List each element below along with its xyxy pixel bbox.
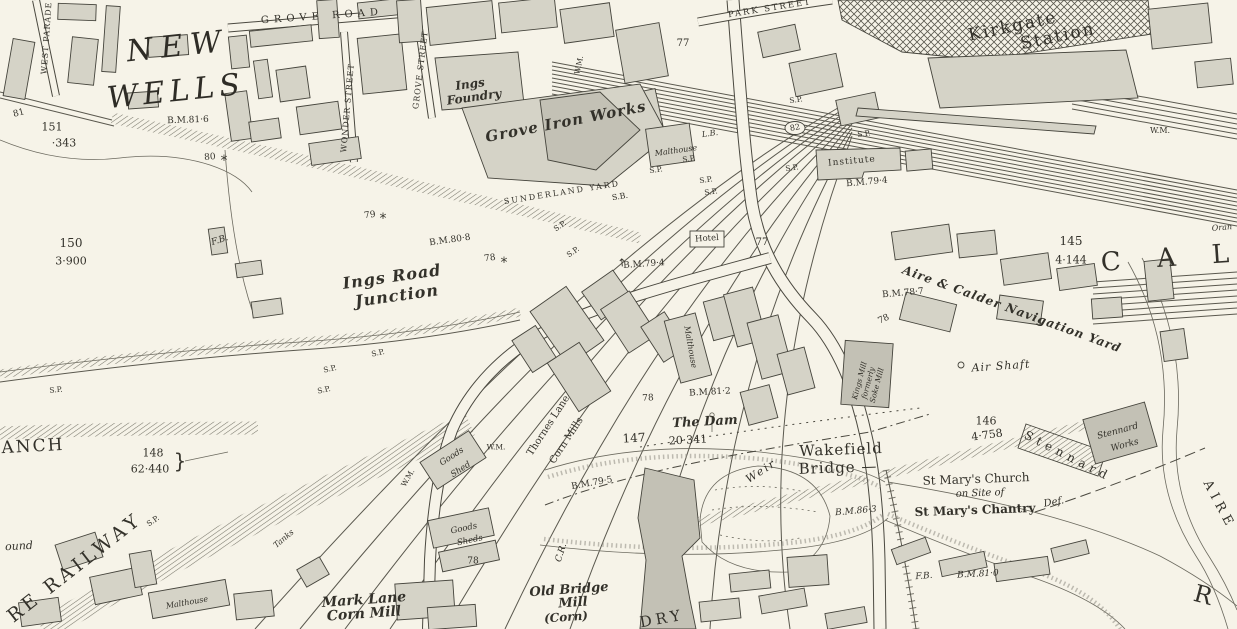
label-num-146: 146	[976, 416, 997, 427]
label-goods-shed-1b: Shed	[450, 461, 473, 480]
label-num-78-b: 78	[877, 314, 891, 327]
label-bm-86-3: B.M.86·3	[835, 506, 877, 519]
label-num-82: 82	[789, 123, 800, 133]
label-bm-78-7: B.M.78·7	[882, 288, 924, 301]
label-wm-d: W.M.	[400, 468, 416, 488]
label-anch: ANCH	[1, 437, 65, 457]
label-sp-f: S.P.	[49, 386, 63, 395]
label-star-80: *	[221, 154, 228, 168]
label-aire: AIRE	[1201, 478, 1237, 532]
label-num-77-a: 77	[677, 39, 690, 49]
label-num-78-c: 78	[467, 558, 478, 567]
label-malthouse-c: Malthouse	[682, 325, 697, 368]
label-cr: C.R.	[555, 543, 569, 564]
label-hotel: Hotel	[695, 234, 719, 244]
label-kings-mill: Kings Mill formerly Soke Mill	[850, 361, 886, 405]
label-num-62-440: 62·440	[131, 464, 170, 475]
label-bm-79-4-b: B.M.79·4	[623, 259, 665, 271]
label-fb-2: F.B.	[915, 572, 933, 582]
label-grove-road: GROVE ROAD	[261, 8, 384, 27]
map-labels: GROVE ROADPARK STREETWEST PARADEWONDER S…	[0, 0, 1237, 629]
label-star-78: *	[501, 256, 508, 270]
label-num-78-a: 78	[484, 254, 497, 265]
label-sp-k: S.P.	[704, 187, 718, 196]
label-ound: ound	[5, 540, 33, 552]
label-dry: DRY	[639, 608, 686, 629]
label-lb: L.B.	[701, 129, 718, 139]
label-tanks: Tanks	[272, 528, 295, 549]
label-num-148: 148	[143, 448, 164, 459]
label-bm-79-5: B.M.79·5	[571, 476, 614, 492]
label-west-parade: WEST PARADE	[40, 1, 53, 74]
label-num-4-144: 4·144	[1055, 255, 1087, 266]
label-oran: Oran	[1212, 223, 1233, 233]
os-map-wakefield: GROVE ROADPARK STREETWEST PARADEWONDER S…	[0, 0, 1237, 629]
label-bm-79-4-a: B.M.79·4	[846, 177, 888, 190]
label-sp-d: S.P.	[323, 364, 337, 374]
label-num-147: 147	[622, 431, 646, 444]
label-sp-n: S.P.	[857, 129, 871, 138]
label-sp-m: S.P.	[789, 95, 803, 104]
label-re-railway: RE RAILWAY	[4, 510, 146, 626]
label-on-site-of: on Site of	[956, 488, 1005, 500]
label-sp-e: S.P.	[317, 385, 331, 395]
label-sb: S.B.	[611, 192, 628, 202]
label-num-145: 145	[1060, 235, 1083, 247]
label-wm-b: W.M.	[1150, 127, 1170, 135]
label-num-151: 151	[42, 122, 63, 133]
label-num-79: 79	[364, 211, 377, 222]
label-old-bridge-3: (Corn)	[544, 609, 589, 624]
label-grove-iron-works: Grove Iron Works	[484, 99, 647, 145]
label-grove-street: GROVE STREET	[412, 30, 430, 109]
label-bm-81-2: B.M.81·2	[689, 387, 731, 398]
label-cal: C A L	[1100, 240, 1237, 276]
label-bm-80-8: B.M.80·8	[429, 234, 471, 249]
label-goods-sheds-2b: Sheds	[456, 534, 483, 548]
label-num-343: ·343	[52, 138, 77, 149]
label-sp-a: S.P.	[552, 219, 567, 233]
label-river-r: R	[1191, 581, 1215, 609]
label-sp-h: S.P.	[682, 154, 696, 163]
label-new-wells-1: NEW	[125, 27, 231, 68]
label-sp-i: S.P.	[649, 165, 663, 174]
label-st-marys-chantry: St Mary's Chantry	[914, 502, 1035, 518]
label-num-4-758: 4·758	[971, 427, 1004, 442]
label-sp-l: S.P.	[785, 163, 799, 172]
label-num-78-d: 78	[642, 394, 654, 404]
label-ings-foundry-2: Foundry	[446, 87, 502, 107]
label-sunderland-yard: SUNDERLAND YARD	[503, 180, 620, 206]
label-weir: Weir	[744, 457, 778, 485]
label-st-marys-church: St Mary's Church	[922, 471, 1029, 487]
label-bridge: Bridge —	[798, 459, 877, 477]
label-star-79: *	[380, 212, 387, 226]
label-wm-c: W.M.	[487, 443, 506, 451]
label-num-20-341: 20·341	[668, 434, 707, 447]
label-new-wells-2: WELLS	[106, 70, 247, 114]
label-bm-arrow: ↑	[617, 257, 627, 269]
label-park-street: PARK STREET	[728, 0, 813, 20]
label-sp-j: S.P.	[699, 175, 713, 184]
label-sp-c: S.P.	[371, 348, 385, 358]
label-air-shaft: Air Shaft	[971, 358, 1031, 373]
label-malthouse-b: Malthouse	[165, 595, 208, 610]
label-bm-81-0: B.M.81·0	[957, 569, 999, 580]
label-wm-a: W.M.	[573, 55, 584, 75]
label-sp-g: S.P.	[145, 514, 160, 528]
label-mark-lane-2: Corn Mill	[326, 604, 401, 623]
label-sp-b: S.P.	[565, 245, 580, 259]
label-def: Def.	[1043, 496, 1065, 509]
label-num-150: 150	[60, 237, 83, 249]
label-fb-1: F.B.	[210, 234, 229, 248]
label-wonder-street: WONDER STREET	[340, 63, 356, 153]
label-the-dam: The Dam	[672, 414, 738, 430]
label-num-77-b: 77	[756, 238, 769, 248]
label-bm-81-6: B.M.81·6	[167, 116, 209, 126]
label-institute: Institute	[828, 155, 876, 168]
label-num-80: 80	[204, 153, 216, 163]
label-stennard-works-2: Works	[1110, 438, 1140, 454]
label-brace-148: }	[174, 451, 187, 471]
label-num-3-900: 3·900	[55, 256, 87, 267]
label-wakefield: Wakefield	[799, 441, 883, 459]
label-num-81: 81	[12, 108, 25, 120]
label-navigation-yard: Aire & Calder Navigation Yard	[901, 264, 1123, 355]
